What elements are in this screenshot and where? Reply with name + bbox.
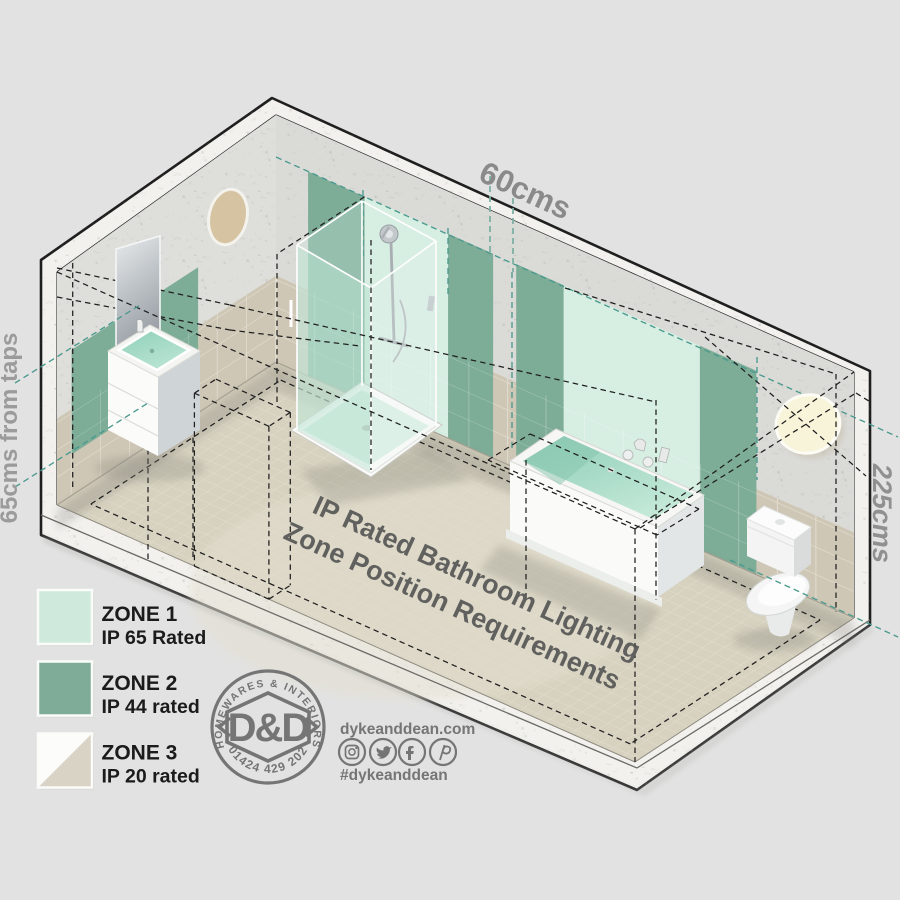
svg-text:IP 20 rated: IP 20 rated: [102, 766, 200, 788]
svg-text:ZONE 2: ZONE 2: [102, 672, 178, 695]
svg-text:D&D: D&D: [228, 706, 310, 750]
svg-text:IP 44 rated: IP 44 rated: [102, 696, 200, 718]
svg-text:ZONE 1: ZONE 1: [102, 603, 178, 626]
svg-text:dykeanddean.com: dykeanddean.com: [340, 721, 475, 738]
svg-text:225cms: 225cms: [867, 461, 898, 565]
svg-text:ZONE 3: ZONE 3: [102, 742, 178, 765]
svg-text:IP 65 Rated: IP 65 Rated: [102, 627, 207, 649]
svg-text:#dykeanddean: #dykeanddean: [340, 767, 448, 784]
svg-text:65cms from taps: 65cms from taps: [0, 333, 23, 524]
